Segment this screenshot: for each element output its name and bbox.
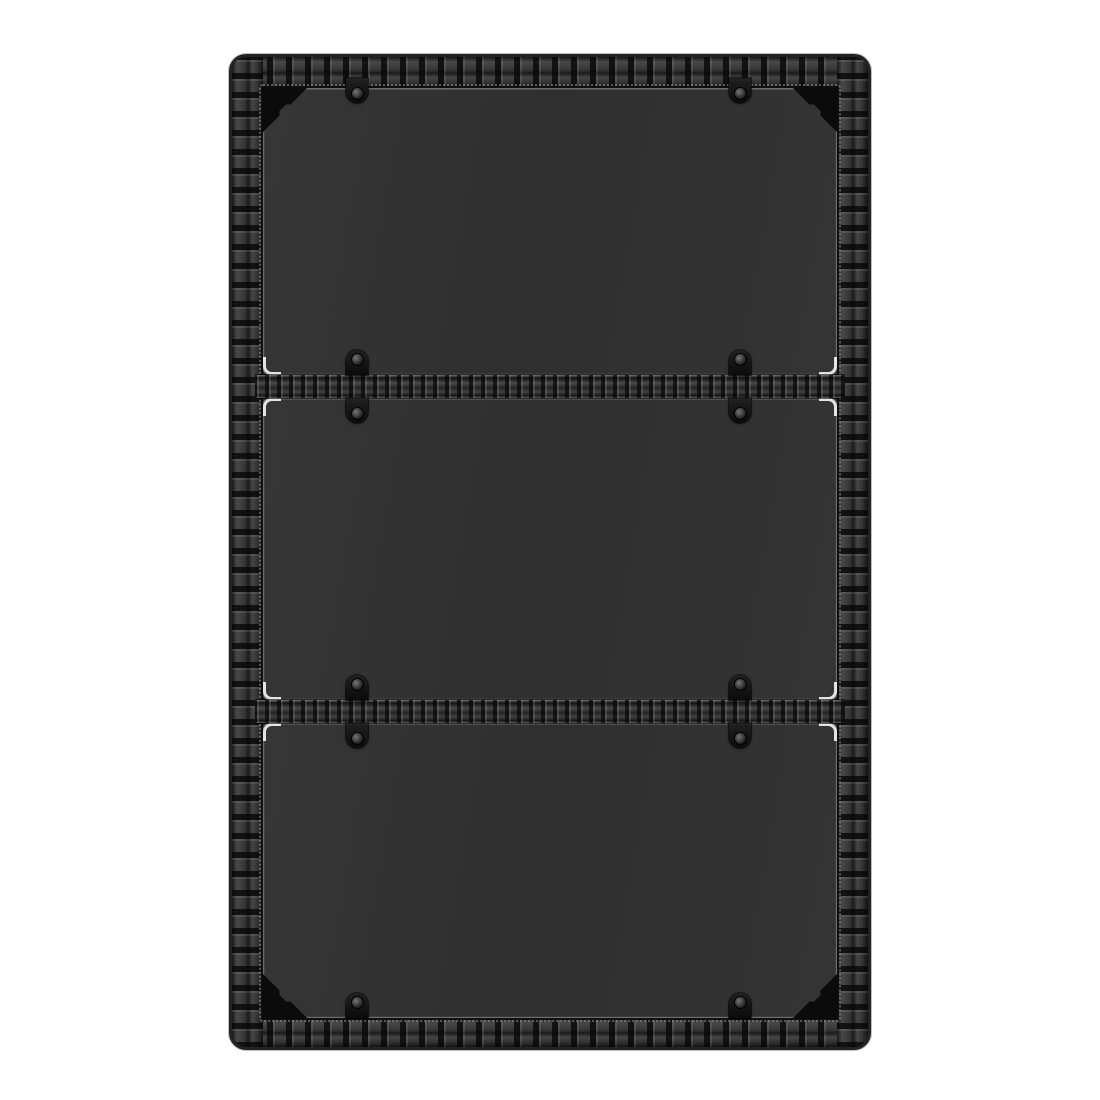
glass-shelf-area [263, 88, 837, 1018]
rattan-border-top [232, 57, 868, 88]
screw-icon [734, 353, 747, 366]
glass-clip [346, 723, 368, 748]
glass-clip [729, 350, 751, 375]
glass-reflection-glint [263, 357, 281, 375]
screw-icon [734, 996, 747, 1009]
screw-icon [351, 996, 364, 1009]
screw-icon [351, 353, 364, 366]
glass-panel [263, 88, 837, 375]
screw-icon [351, 407, 364, 420]
glass-reflection-glint [263, 398, 281, 416]
glass-panel [263, 398, 837, 700]
glass-reflection-glint [819, 357, 837, 375]
glass-reflection-glint [819, 682, 837, 700]
product-photo-canvas [0, 0, 1100, 1100]
rattan-border-bottom [232, 1018, 868, 1047]
glass-clip [729, 723, 751, 748]
glass-clip [729, 675, 751, 700]
glass-reflection-glint [263, 682, 281, 700]
rattan-divider-bar [255, 700, 845, 723]
glass-clip [346, 398, 368, 423]
glass-clip [346, 675, 368, 700]
screw-icon [734, 732, 747, 745]
rattan-border-right [837, 57, 868, 1047]
glass-reflection-glint [819, 723, 837, 741]
rattan-divider-bar [255, 375, 845, 398]
glass-clip [729, 993, 751, 1018]
glass-reflection-glint [263, 723, 281, 741]
glass-clip [729, 398, 751, 423]
glass-clip [346, 350, 368, 375]
screw-icon [351, 87, 364, 100]
glass-clip [729, 78, 751, 103]
glass-reflection-glint [819, 398, 837, 416]
screw-icon [734, 407, 747, 420]
glass-panel [263, 723, 837, 1018]
screw-icon [351, 678, 364, 691]
glass-clip [346, 993, 368, 1018]
glass-clip [346, 78, 368, 103]
screw-icon [734, 87, 747, 100]
rattan-border-left [232, 57, 263, 1047]
rattan-frame [232, 57, 868, 1047]
screw-icon [734, 678, 747, 691]
screw-icon [351, 732, 364, 745]
